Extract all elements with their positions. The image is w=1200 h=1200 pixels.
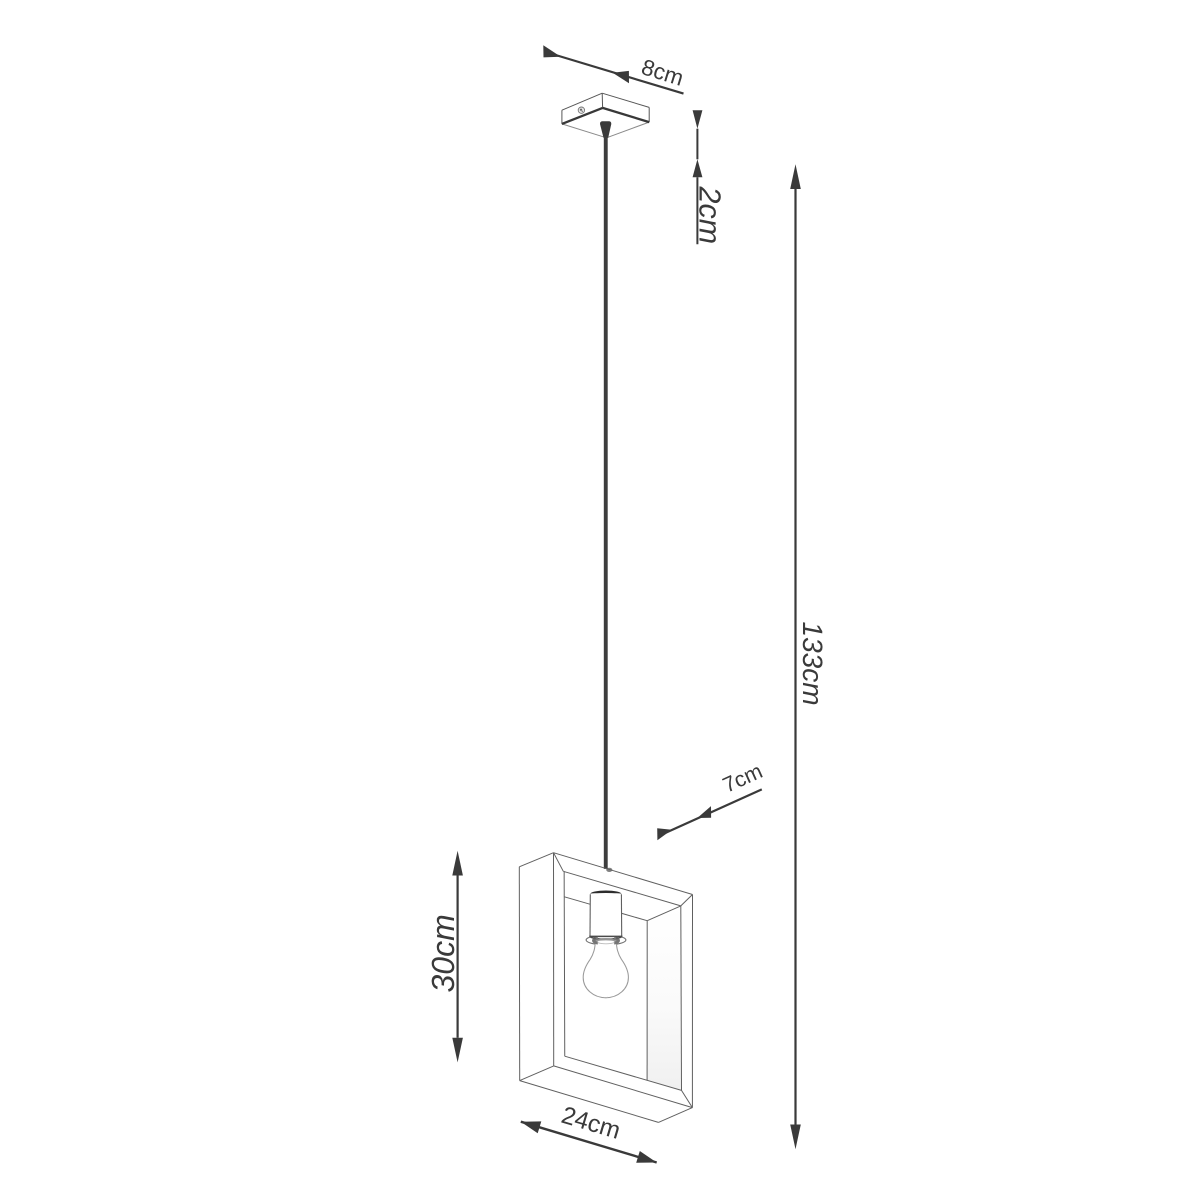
svg-text:133cm: 133cm [797, 622, 828, 706]
svg-text:2cm: 2cm [693, 186, 727, 245]
svg-text:30cm: 30cm [425, 914, 461, 992]
